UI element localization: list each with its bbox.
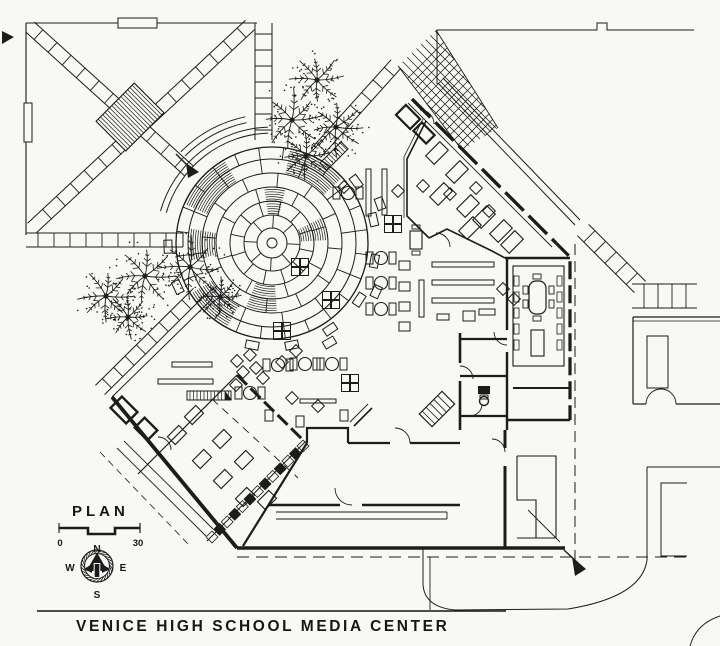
sheet-title: VENICE HIGH SCHOOL MEDIA CENTER bbox=[76, 618, 449, 635]
rotunda-court bbox=[160, 117, 385, 350]
compass-west-label: W bbox=[65, 563, 75, 574]
site-walkways bbox=[237, 20, 720, 646]
courtyard-crossing-paths bbox=[2, 18, 401, 247]
scale-start-label: 0 bbox=[57, 538, 62, 549]
building-walls bbox=[95, 99, 570, 548]
plan-label: PLAN bbox=[72, 503, 129, 520]
compass-south-label: S bbox=[94, 590, 101, 601]
compass-east-label: E bbox=[120, 563, 127, 574]
scale-end-label: 30 bbox=[133, 538, 144, 549]
scale-bar bbox=[59, 523, 140, 534]
compass-north-label: N bbox=[93, 544, 100, 555]
floor-plan-drawing: PLAN 0 30 N W E S VENICE HIGH SCHOOL MED… bbox=[0, 0, 720, 646]
annotations: PLAN 0 30 N W E S VENICE HIGH SCHOOL MED… bbox=[37, 503, 506, 635]
trees bbox=[77, 50, 370, 341]
floor-plan-sheet: PLAN 0 30 N W E S VENICE HIGH SCHOOL MED… bbox=[0, 0, 720, 646]
